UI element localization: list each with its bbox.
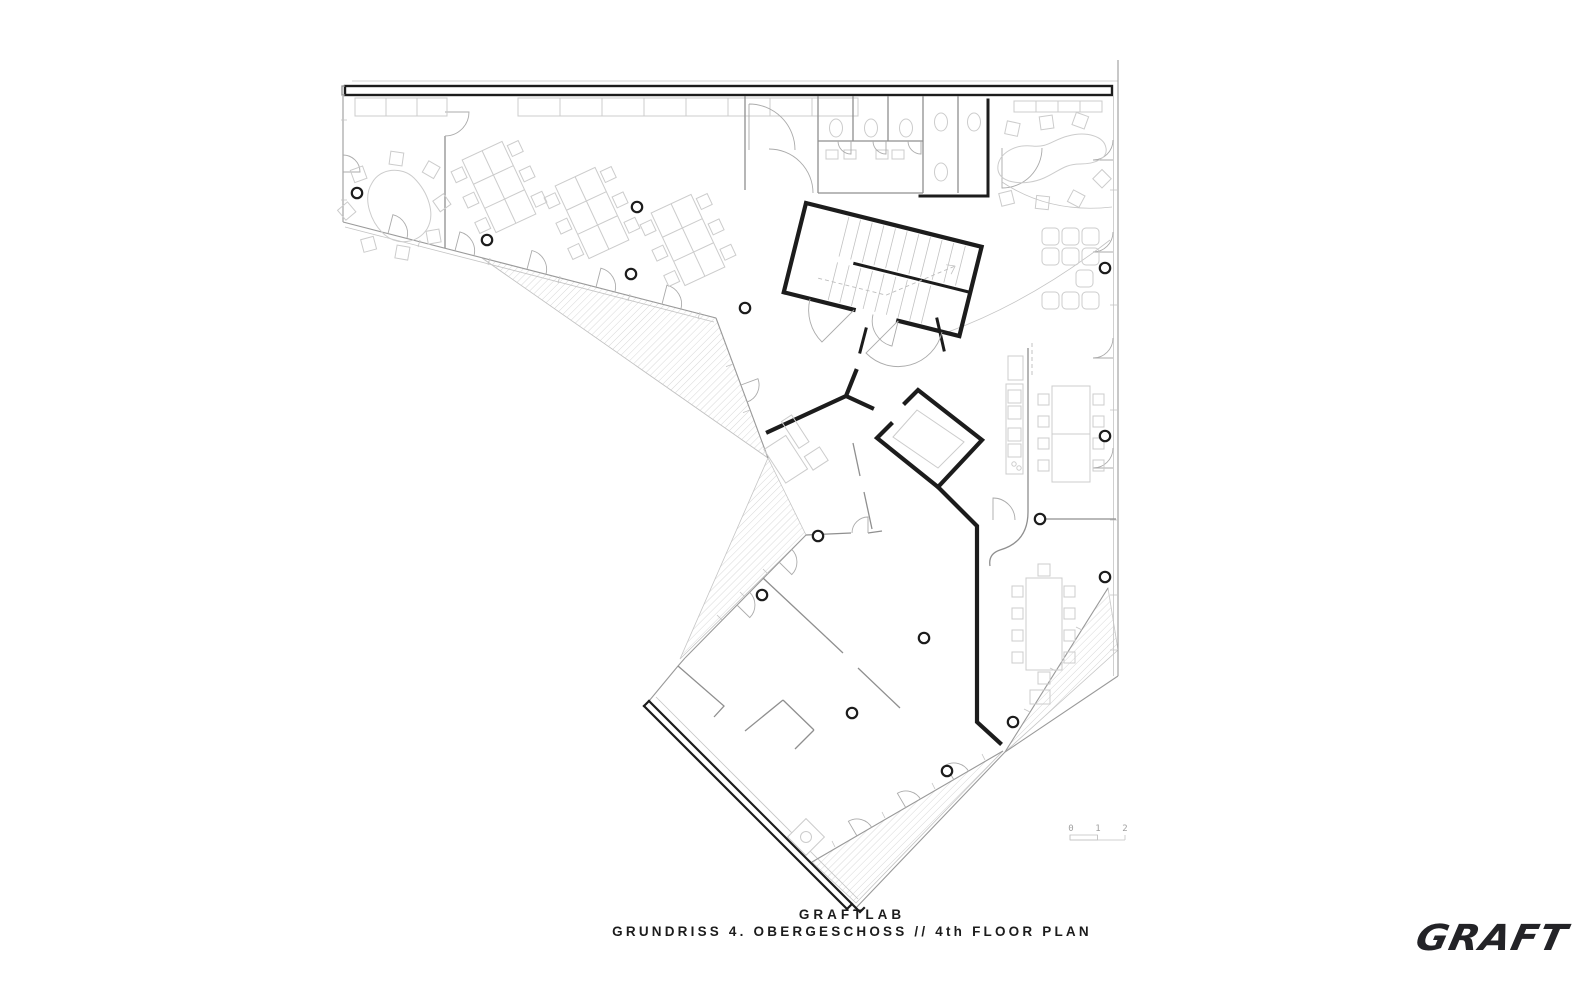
graft-logo: GRAFT: [1412, 918, 1571, 959]
sheet-title-plan: GRUNDRISS 4. OBERGESCHOSS // 4th FLOOR P…: [612, 923, 1092, 940]
stair-core: [777, 203, 981, 367]
terrace-hatch-areas: [482, 258, 1118, 903]
floor-plan-drawing: 0 1 2: [0, 0, 1582, 985]
scale-label-2: 2: [1122, 824, 1127, 834]
scale-label-1: 1: [1095, 824, 1100, 834]
desk-cluster: [449, 135, 550, 239]
west-facade: [341, 96, 360, 222]
reception-desk: [948, 112, 1112, 332]
desk-cluster: [638, 188, 739, 292]
elevator-core: [768, 371, 1000, 743]
columns: [352, 188, 1110, 776]
locker-shelf-rows: [355, 98, 1102, 116]
wc-block: [745, 96, 1042, 196]
organic-meeting-table: [338, 151, 451, 260]
desk-cluster: [542, 161, 643, 265]
sheet-title-project: GRAFTLAB: [612, 906, 1092, 923]
kitchen-zone: [990, 343, 1116, 566]
north-wall: [342, 81, 1118, 95]
meeting-room-west-partition: [445, 112, 469, 248]
shaft-box: [788, 819, 825, 856]
drawing-sheet: 0 1 2 GRAFTLAB GRUNDRISS 4. OBERGESCHOSS…: [0, 0, 1582, 985]
scale-bar: 0 1 2: [1068, 824, 1127, 840]
title-block: GRAFTLAB GRUNDRISS 4. OBERGESCHOSS // 4t…: [612, 906, 1092, 940]
scale-label-0: 0: [1068, 824, 1073, 834]
